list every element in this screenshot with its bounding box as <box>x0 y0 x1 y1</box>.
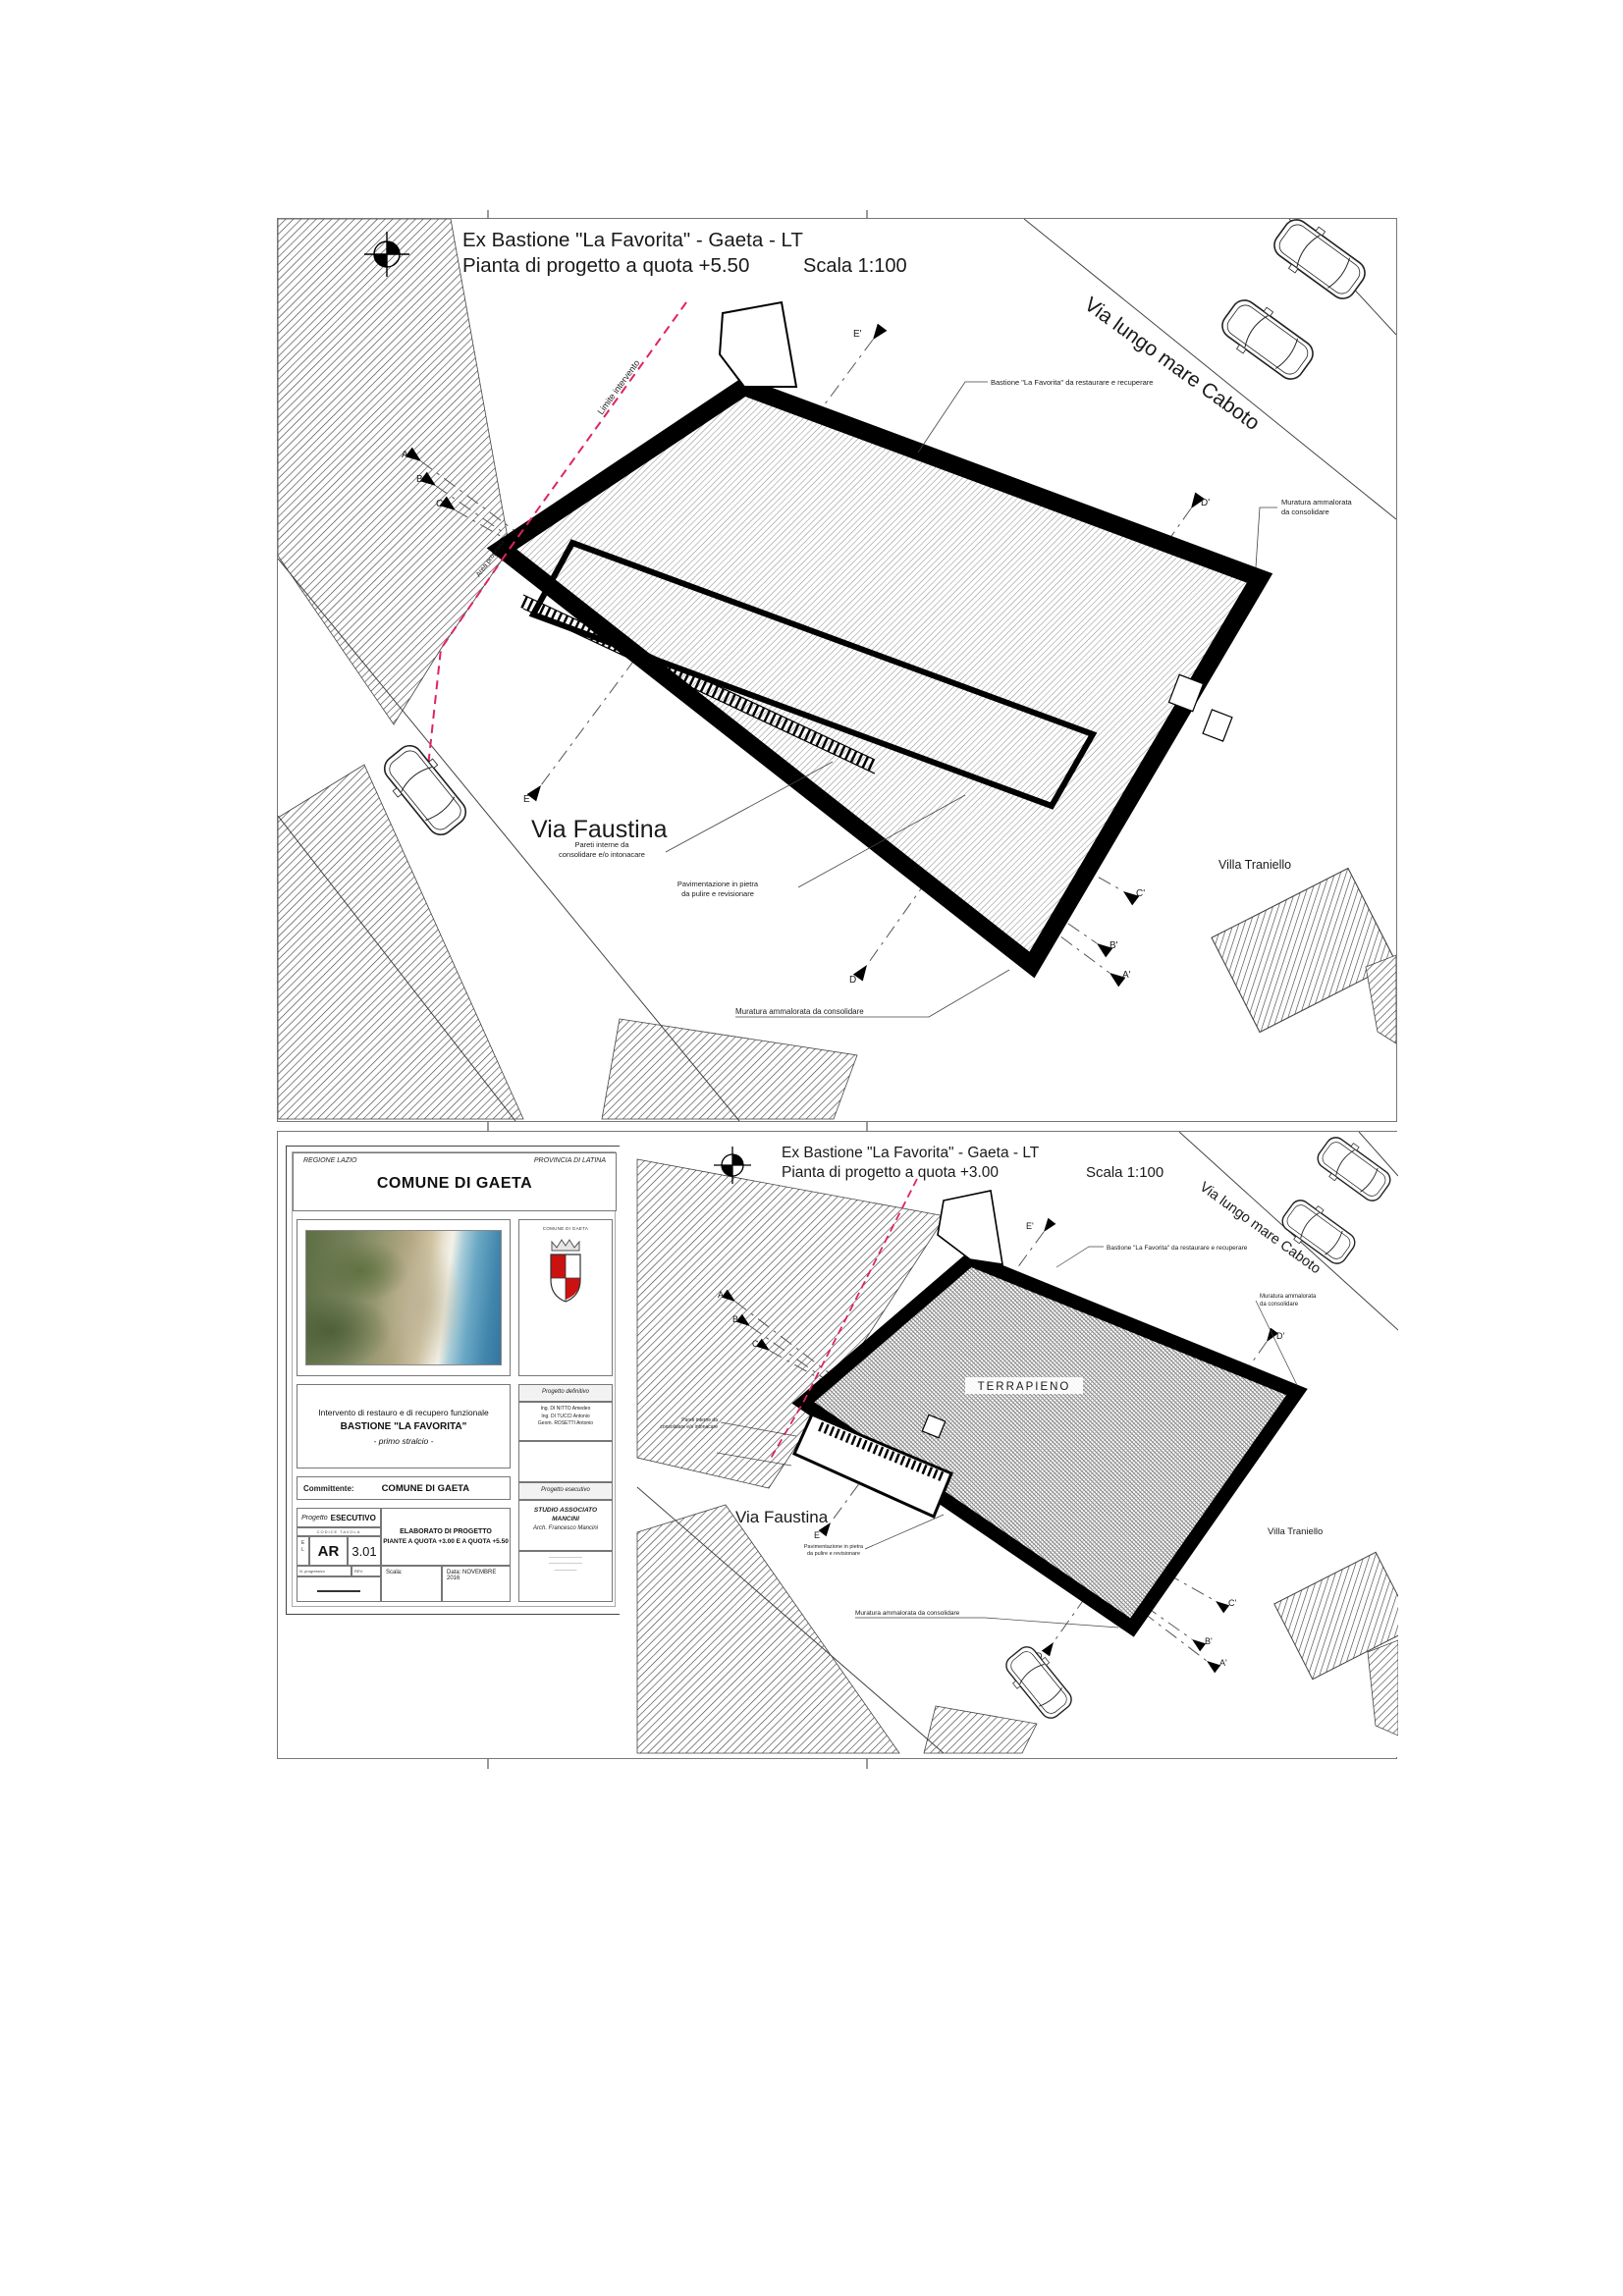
svg-text:Muratura ammalorata da consoli: Muratura ammalorata da consolidare <box>855 1610 960 1617</box>
plan1-scale: Scala 1:100 <box>803 255 907 277</box>
plan1-drawing: Limite intervento Area proprietà A B C E… <box>278 219 1396 1121</box>
project-title-1: Intervento di restauro e di recupero fun… <box>298 1408 510 1417</box>
code-side-cell: EL <box>297 1536 309 1566</box>
right-col-def-names: Ing. DI NITTO Amedeo Ing. DI TUCCI Anton… <box>518 1402 613 1441</box>
provincia-label: PROVINCIA DI LATINA <box>534 1157 606 1164</box>
svg-text:Pavimentazione in pietra: Pavimentazione in pietra <box>804 1544 864 1550</box>
right-col-address: ──────────────────────────────── <box>518 1551 613 1602</box>
svg-text:A: A <box>402 450 408 460</box>
svg-text:B: B <box>732 1314 738 1324</box>
svg-text:da pulire e revisionare: da pulire e revisionare <box>807 1551 860 1557</box>
right-col-ese-studio: STUDIO ASSOCIATO MANCINI Arch. Francesco… <box>518 1500 613 1551</box>
code-prefix-cell: AR <box>309 1536 348 1566</box>
plan2-title-line1: Ex Bastione "La Favorita" - Gaeta - LT <box>782 1145 1040 1161</box>
svg-text:Bastione "La Favorita" da rest: Bastione "La Favorita" da restaurare e r… <box>1107 1245 1248 1252</box>
svg-text:Pavimentazione in pietra: Pavimentazione in pietra <box>677 880 759 888</box>
svg-text:B': B' <box>1109 940 1118 951</box>
svg-text:E: E <box>814 1530 820 1540</box>
svg-text:C': C' <box>1228 1598 1236 1608</box>
plan2-title-line2: Pianta di progetto a quota +3.00 <box>782 1164 999 1181</box>
aerial-photo-box <box>297 1219 511 1376</box>
project-title-box: Intervento di restauro e di recupero fun… <box>297 1384 511 1468</box>
committente-label: Committente: <box>303 1484 354 1493</box>
svg-text:D': D' <box>1276 1331 1284 1341</box>
via-faustina-label: Via Faustina <box>531 816 668 843</box>
aerial-photo <box>305 1230 502 1365</box>
sheet-plan-550: Limite intervento Area proprietà A B C E… <box>277 218 1397 1122</box>
svg-text:Pareti interne da: Pareti interne da <box>681 1417 718 1423</box>
villa-traniello-label: Villa Traniello <box>1218 858 1291 872</box>
project-title-3: - primo stralcio - <box>298 1436 510 1446</box>
svg-text:Muratura ammalorata da consoli: Muratura ammalorata da consolidare <box>735 1007 864 1016</box>
svg-text:A': A' <box>1219 1658 1227 1668</box>
codice-tavola-row: CODICE TAVOLA <box>297 1527 381 1536</box>
rev-cell: REV. <box>352 1566 381 1576</box>
gaeta-crest-icon <box>539 1235 592 1311</box>
crest-caption: COMUNE DI GAETA <box>519 1226 612 1231</box>
comune-title: COMUNE DI GAETA <box>294 1175 616 1193</box>
page: { "sheet1": { "title_line1": "Ex Bastion… <box>0 0 1623 2296</box>
signature-cell <box>297 1576 381 1602</box>
svg-text:da consolidare: da consolidare <box>1281 507 1329 516</box>
progetto-esecutivo-row: Progetto ESECUTIVO <box>297 1508 381 1527</box>
svg-text:da pulire e revisionare: da pulire e revisionare <box>681 889 754 898</box>
svg-text:B': B' <box>1205 1636 1213 1646</box>
terrapieno-label: TERRAPIENO <box>978 1381 1071 1393</box>
svg-text:E: E <box>523 794 530 805</box>
crest-box: COMUNE DI GAETA <box>518 1219 613 1376</box>
svg-text:D: D <box>849 975 856 986</box>
svg-text:C: C <box>436 499 443 509</box>
svg-text:Pareti interne da: Pareti interne da <box>574 840 629 849</box>
plan2-drawing: TERRAPIENO A B C E' E D' D C' B' A' Ex B… <box>620 1132 1398 1757</box>
svg-text:A: A <box>718 1290 724 1300</box>
svg-text:C: C <box>752 1339 759 1349</box>
plan2-scale: Scala 1:100 <box>1086 1164 1163 1181</box>
sheet-plan-300: REGIONE LAZIO PROVINCIA DI LATINA COMUNE… <box>277 1131 1397 1759</box>
svg-text:da consolidare: da consolidare <box>1260 1302 1299 1308</box>
right-col-ese-header: Progetto esecutivo <box>518 1482 613 1500</box>
code-number-cell: 3.01 <box>348 1536 381 1566</box>
committente-value: COMUNE DI GAETA <box>382 1483 470 1494</box>
svg-text:C': C' <box>1136 888 1145 899</box>
svg-text:Bastione "La Favorita" da rest: Bastione "La Favorita" da restaurare e r… <box>991 378 1153 387</box>
svg-text:E': E' <box>1026 1221 1034 1231</box>
svg-text:consolidare e/o intonacare: consolidare e/o intonacare <box>660 1424 718 1430</box>
svg-text:D': D' <box>1201 498 1210 508</box>
svg-text:B: B <box>416 474 423 485</box>
elaborato-box: ELABORATO DI PROGETTO PIANTE A QUOTA +3.… <box>381 1508 511 1566</box>
nprogressivo-cell: N. progressivo <box>297 1566 352 1576</box>
svg-text:E': E' <box>853 329 862 340</box>
plan1-title-line2: Pianta di progetto a quota +5.50 <box>462 254 749 277</box>
regione-label: REGIONE LAZIO <box>303 1157 356 1164</box>
scala-cell: Scala: <box>381 1566 442 1602</box>
villa-traniello-label: Villa Traniello <box>1268 1526 1323 1537</box>
right-col-def-header: Progetto definitivo <box>518 1384 613 1402</box>
svg-text:Muratura ammalorata: Muratura ammalorata <box>1281 498 1353 507</box>
via-faustina-label: Via Faustina <box>735 1508 829 1526</box>
committente-row: Committente: COMUNE DI GAETA <box>297 1476 511 1500</box>
project-title-2: BASTIONE "LA FAVORITA" <box>298 1421 510 1432</box>
right-col-spacer <box>518 1441 613 1482</box>
titleblock-header: REGIONE LAZIO PROVINCIA DI LATINA COMUNE… <box>293 1152 617 1211</box>
svg-text:Muratura ammalorata: Muratura ammalorata <box>1260 1294 1317 1300</box>
data-cell: Data: NOVEMBRE 2016 <box>442 1566 511 1602</box>
title-block: REGIONE LAZIO PROVINCIA DI LATINA COMUNE… <box>286 1146 622 1615</box>
svg-text:A': A' <box>1122 970 1131 981</box>
plan1-title-line1: Ex Bastione "La Favorita" - Gaeta - LT <box>462 229 803 251</box>
svg-text:consolidare e/o intonacare: consolidare e/o intonacare <box>559 850 645 859</box>
